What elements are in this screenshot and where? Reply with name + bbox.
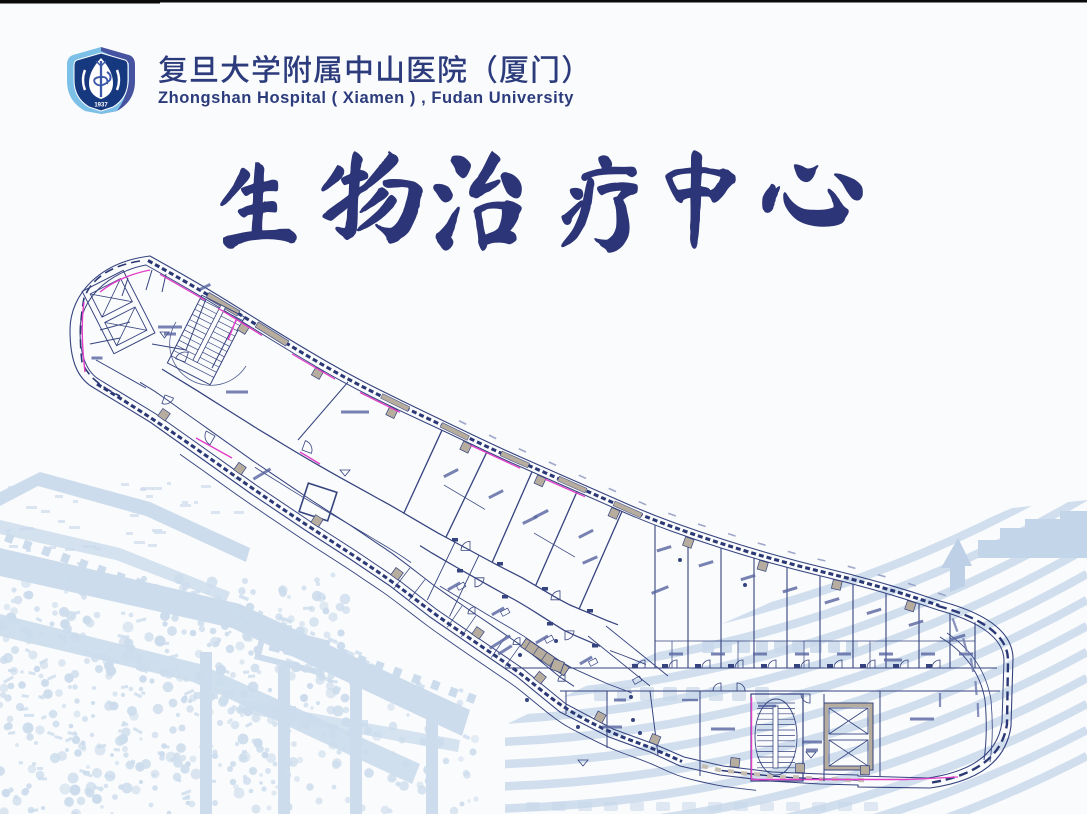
svg-text:1937: 1937 [94, 103, 108, 109]
svg-text:Zhongshan Hospital ( Xiamen ): Zhongshan Hospital ( Xiamen ) , Fudan Un… [158, 89, 574, 107]
